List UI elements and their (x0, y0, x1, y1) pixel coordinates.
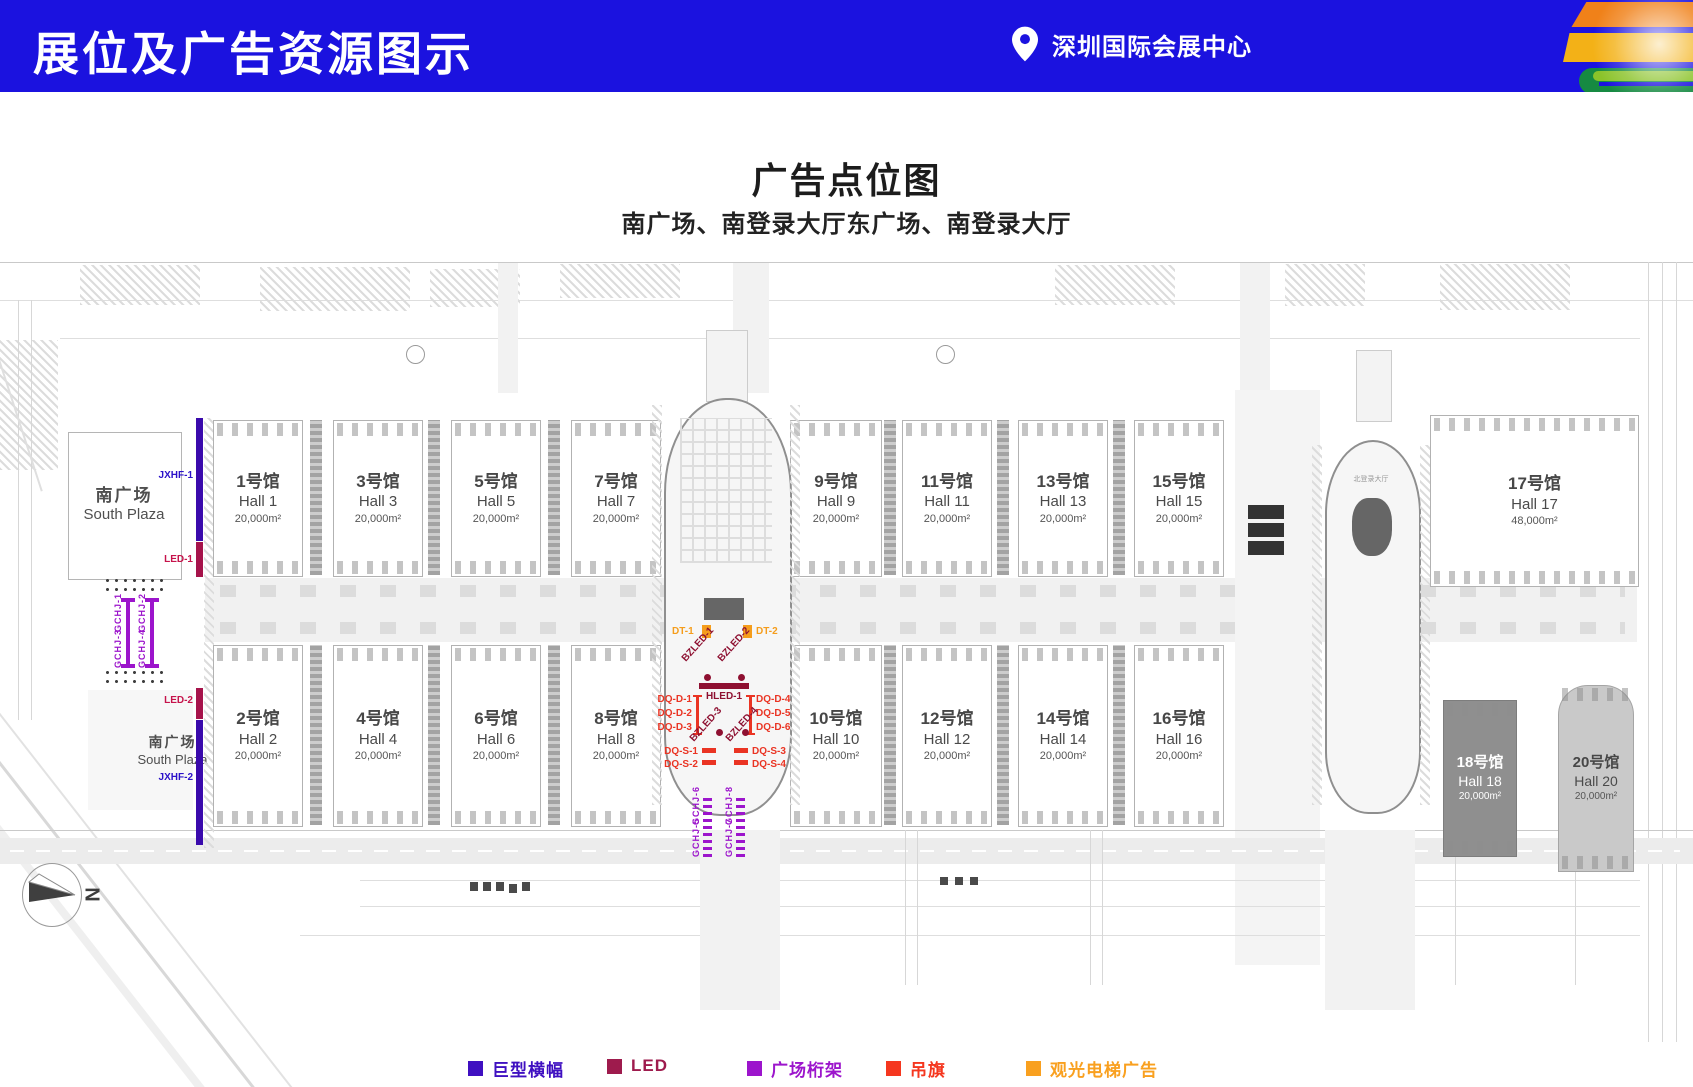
north-lobby-label: 北登录大厅 (1347, 474, 1395, 484)
legend-item-jxhf: 巨型横幅 (468, 1056, 564, 1081)
hall-12-en: Hall 12 (924, 730, 971, 750)
green-patch (80, 265, 200, 305)
green-patch (560, 264, 680, 298)
road-line (1676, 262, 1677, 1042)
marker-dq-s-2-label: DQ-S-2 (652, 759, 698, 770)
hall-2-en: Hall 2 (239, 730, 277, 750)
marker-led-2-bar (196, 688, 203, 719)
corridor-strip (1113, 645, 1125, 825)
marker-hled-1-bar (699, 683, 749, 689)
marker-dt-1-label: DT-1 (672, 626, 694, 637)
corridor-strip (884, 420, 896, 575)
legend-label-gchj: 广场桁架 (771, 1056, 843, 1081)
marker-dq-d-3-label: DQ-D-3 (650, 722, 692, 733)
hall-10-en: Hall 10 (813, 730, 860, 750)
compass-needle (23, 864, 81, 926)
map-title: 广告点位图 (0, 152, 1693, 204)
hall-18: 18号馆 Hall 18 20,000m² (1443, 700, 1517, 857)
hall-3-name: 3号馆 (356, 471, 399, 492)
gate-approach (1325, 830, 1415, 1010)
road-line (31, 300, 32, 720)
hall-9: 9号馆 Hall 9 20,000m² (790, 420, 882, 577)
hall-20: 20号馆 Hall 20 20,000m² (1558, 685, 1634, 872)
green-patch (260, 267, 410, 311)
legend-swatch-led (607, 1059, 622, 1074)
marker-dt-2-label: DT-2 (756, 626, 778, 637)
marker-gchj-7-label: GCHJ-7 (724, 827, 734, 857)
hall-4: 4号馆 Hall 4 20,000m² (333, 645, 423, 827)
hall-11-en: Hall 11 (924, 492, 970, 512)
small-building (970, 877, 978, 885)
hall-20-en: Hall 20 (1574, 772, 1618, 790)
small-building (955, 877, 963, 885)
hall-6-area: 20,000m² (473, 749, 519, 763)
header-bar: 展位及广告资源图示 深圳国际会展中心 (0, 0, 1693, 92)
road-dashes (10, 850, 1680, 852)
road-line (60, 338, 1640, 339)
logo-sphere-glow (1563, 0, 1693, 92)
hall-14: 14号馆 Hall 14 20,000m² (1018, 645, 1108, 827)
corridor-strip (1113, 420, 1125, 575)
hall-16-name: 16号馆 (1153, 708, 1206, 729)
green-patch (1285, 264, 1365, 306)
ship-walkway (790, 405, 800, 805)
road-line (0, 262, 1693, 263)
hall-10-name: 10号馆 (810, 708, 863, 729)
hall-2: 2号馆 Hall 2 20,000m² (213, 645, 303, 827)
small-building (522, 882, 530, 891)
corridor-strip (548, 645, 560, 825)
corridor-strip (884, 645, 896, 825)
hall-18-name: 18号馆 (1457, 754, 1504, 773)
legend-item-led: LED (607, 1056, 668, 1076)
marker-jxhf-2-label: JXHF-2 (131, 772, 193, 783)
hall-15: 15号馆 Hall 15 20,000m² (1134, 420, 1224, 577)
hall-2-area: 20,000m² (235, 749, 281, 763)
marker-bzled-2-dot (738, 674, 745, 681)
marker-led-1-label: LED-1 (131, 554, 193, 565)
page-title: 展位及广告资源图示 (33, 18, 474, 84)
hall-3-en: Hall 3 (359, 492, 397, 512)
hall-4-area: 20,000m² (355, 749, 401, 763)
marker-dq-d-2-label: DQ-D-2 (650, 708, 692, 719)
site-plan: 南广场 South Plaza 南广场 South Plaza GCHJ-1 G… (0, 255, 1693, 1045)
green-patch (1055, 265, 1175, 305)
marker-dq-d-6-label: DQ-D-6 (756, 722, 790, 733)
hall-10-area: 20,000m² (813, 749, 859, 763)
small-building (940, 877, 948, 885)
legend-label-dt: 观光电梯广告 (1050, 1056, 1158, 1081)
marker-dq-s-1-bar (702, 748, 716, 753)
marker-gchj-1-label: GCHJ-1 (113, 598, 123, 632)
marker-dq-d-4-label: DQ-D-4 (756, 694, 790, 705)
median-road (1235, 390, 1320, 965)
small-building (470, 882, 478, 891)
hall-14-area: 20,000m² (1040, 749, 1086, 763)
brand-logo (1563, 0, 1693, 92)
map-subtitle: 南广场、南登录大厅东广场、南登录大厅 (0, 204, 1693, 239)
north-lobby-stem (1356, 350, 1392, 422)
marker-dq-s-3-bar (734, 748, 748, 753)
marker-dq-d-1-label: DQ-D-1 (650, 694, 692, 705)
south-plaza-en: South Plaza (70, 506, 178, 523)
corridor-strip (997, 645, 1009, 825)
hall-17-name: 17号馆 (1508, 473, 1561, 494)
marker-hled-1-label: HLED-1 (701, 691, 747, 702)
hall-9-en: Hall 9 (817, 492, 855, 512)
hall-16: 16号馆 Hall 16 20,000m² (1134, 645, 1224, 827)
hall-1-name: 1号馆 (236, 471, 279, 492)
marker-led-1-bar (196, 542, 203, 577)
small-building (496, 882, 504, 891)
corridor-strip (310, 420, 322, 575)
marker-gchj-3-label: GCHJ-3 (113, 634, 123, 668)
road-line (1455, 855, 1456, 985)
hall-12: 12号馆 Hall 12 20,000m² (902, 645, 992, 827)
hall-1-area: 20,000m² (235, 512, 281, 526)
road-line (360, 880, 1640, 881)
road-line (1662, 262, 1663, 1042)
hall-14-name: 14号馆 (1037, 708, 1090, 729)
south-lobby-stem (706, 330, 748, 402)
page: 展位及广告资源图示 深圳国际会展中心 广告点位图 南广场、南登录大厅东广场、南登… (0, 0, 1693, 1087)
hall-16-area: 20,000m² (1156, 749, 1202, 763)
hall-11-name: 11号馆 (921, 471, 973, 492)
marker-gchj-7-8-truss (736, 795, 745, 857)
corridor-strip (310, 645, 322, 825)
gate-approach (1240, 263, 1270, 393)
hall-3-area: 20,000m² (355, 512, 401, 526)
hall-13-area: 20,000m² (1040, 512, 1086, 526)
marker-dq-s-4-bar (734, 760, 748, 765)
hall-20-area: 20,000m² (1575, 790, 1617, 803)
roundabout (406, 345, 425, 364)
hall-17: 17号馆 Hall 17 48,000m² (1430, 415, 1639, 587)
marker-bzled-3-dot (716, 729, 723, 736)
hall-5-area: 20,000m² (473, 512, 519, 526)
corridor-strip (548, 420, 560, 575)
hall-8-en: Hall 8 (597, 730, 635, 750)
road-line (1090, 830, 1091, 985)
legend-label-dq: 吊旗 (910, 1056, 946, 1081)
marker-bzled-4-dot (742, 729, 749, 736)
hall-2-name: 2号馆 (236, 708, 279, 729)
north-login-hall (1325, 440, 1421, 814)
hall-4-name: 4号馆 (356, 708, 399, 729)
road-line (1102, 830, 1103, 985)
hall-1-en: Hall 1 (239, 492, 277, 512)
hall-5-name: 5号馆 (474, 471, 517, 492)
hall-1: 1号馆 Hall 1 20,000m² (213, 420, 303, 577)
marker-jxhf-2-bar (196, 720, 203, 845)
hall-15-en: Hall 15 (1156, 492, 1203, 512)
hall-6-en: Hall 6 (477, 730, 515, 750)
road-line (917, 830, 918, 985)
marker-jxhf-1-label: JXHF-1 (131, 470, 193, 481)
marker-led-2-label: LED-2 (131, 695, 193, 706)
legend-label-jxhf: 巨型横幅 (492, 1056, 564, 1081)
legend-item-dt: 观光电梯广告 (1026, 1056, 1158, 1081)
legend-swatch-dq (886, 1061, 901, 1076)
marker-dq-d-5-label: DQ-D-5 (756, 708, 790, 719)
corridor-strip (428, 420, 440, 575)
venue-badge: 深圳国际会展中心 (1012, 26, 1252, 62)
location-pin-icon (1012, 26, 1038, 62)
marker-gchj-4-label: GCHJ-4 (137, 634, 147, 668)
hall-18-en: Hall 18 (1458, 772, 1502, 790)
legend-swatch-jxhf (468, 1061, 483, 1076)
south-lobby-grid (680, 418, 772, 563)
marker-gchj-5-6-truss (703, 795, 712, 857)
hall-11: 11号馆 Hall 11 20,000m² (902, 420, 992, 577)
south-plaza-upper-label: 南广场 South Plaza (70, 481, 178, 523)
road-line (18, 300, 19, 720)
roundabout (936, 345, 955, 364)
hall-18-area: 20,000m² (1459, 790, 1501, 803)
hall-8: 8号馆 Hall 8 20,000m² (571, 645, 661, 827)
hall-17-en: Hall 17 (1511, 495, 1558, 515)
corridor-strip (428, 645, 440, 825)
median-building (1248, 523, 1284, 537)
legend-swatch-dt (1026, 1061, 1041, 1076)
marker-dq-s-1-label: DQ-S-1 (652, 746, 698, 757)
hall-13-en: Hall 13 (1040, 492, 1087, 512)
hall-12-name: 12号馆 (921, 708, 974, 729)
hall-7-en: Hall 7 (597, 492, 635, 512)
hall-16-en: Hall 16 (1156, 730, 1203, 750)
compass-north-label: N (80, 887, 103, 901)
hall-6-name: 6号馆 (474, 708, 517, 729)
south-plaza-cn: 南广场 (70, 481, 178, 506)
hall-6: 6号馆 Hall 6 20,000m² (451, 645, 541, 827)
marker-jxhf-1-bar (196, 418, 203, 541)
marker-gchj-1-3-truss (126, 598, 130, 668)
median-building (1248, 541, 1284, 555)
marker-dq-s-4-label: DQ-S-4 (752, 759, 786, 770)
ship-walkway (652, 405, 662, 805)
median-building (1248, 505, 1284, 519)
legend-item-gchj: 广场桁架 (747, 1056, 843, 1081)
hall-13: 13号馆 Hall 13 20,000m² (1018, 420, 1108, 577)
legend-label-led: LED (631, 1056, 668, 1076)
gate-approach (700, 830, 780, 1010)
hall-20-name: 20号馆 (1573, 754, 1620, 773)
marker-bzled-1-dot (704, 674, 711, 681)
hall-7: 7号馆 Hall 7 20,000m² (571, 420, 661, 577)
hall-9-name: 9号馆 (814, 471, 857, 492)
ship-walkway (1420, 445, 1430, 805)
small-building (509, 884, 517, 893)
hall-11-area: 20,000m² (924, 512, 970, 526)
road-line (1575, 870, 1576, 985)
road-line (0, 830, 1693, 831)
marker-gchj-5-label: GCHJ-5 (691, 827, 701, 857)
venue-name: 深圳国际会展中心 (1052, 27, 1252, 62)
hall-3: 3号馆 Hall 3 20,000m² (333, 420, 423, 577)
road-line (1648, 262, 1649, 1042)
hall-4-en: Hall 4 (359, 730, 397, 750)
hall-15-area: 20,000m² (1156, 512, 1202, 526)
road-line (360, 906, 1640, 907)
hall-8-name: 8号馆 (594, 708, 637, 729)
hall-15-name: 15号馆 (1153, 471, 1206, 492)
hall-7-name: 7号馆 (594, 471, 637, 492)
tree-row (103, 668, 167, 686)
south-lobby-core (704, 598, 744, 620)
ship-walkway (1312, 445, 1322, 805)
small-building (483, 882, 491, 891)
hall-10: 10号馆 Hall 10 20,000m² (790, 645, 882, 827)
road-line (905, 830, 906, 985)
compass (22, 863, 82, 927)
hall-8-area: 20,000m² (593, 749, 639, 763)
north-lobby-auditorium (1352, 498, 1392, 556)
hall-12-area: 20,000m² (924, 749, 970, 763)
legend-item-dq: 吊旗 (886, 1056, 946, 1081)
road-line (300, 935, 1640, 936)
marker-gchj-2-4-truss (150, 598, 154, 668)
legend-swatch-gchj (747, 1061, 762, 1076)
hall-9-area: 20,000m² (813, 512, 859, 526)
hall-5-en: Hall 5 (477, 492, 515, 512)
hall-7-area: 20,000m² (593, 512, 639, 526)
tree-row (103, 576, 167, 594)
hall-14-en: Hall 14 (1040, 730, 1087, 750)
hall-13-name: 13号馆 (1037, 471, 1090, 492)
hall-17-area: 48,000m² (1511, 514, 1557, 528)
green-patch (1440, 264, 1570, 310)
hall-5: 5号馆 Hall 5 20,000m² (451, 420, 541, 577)
gate-approach (498, 263, 518, 393)
marker-dq-s-2-bar (702, 760, 716, 765)
corridor-strip (997, 420, 1009, 575)
marker-dq-s-3-label: DQ-S-3 (752, 746, 786, 757)
marker-gchj-2-label: GCHJ-2 (137, 598, 147, 632)
